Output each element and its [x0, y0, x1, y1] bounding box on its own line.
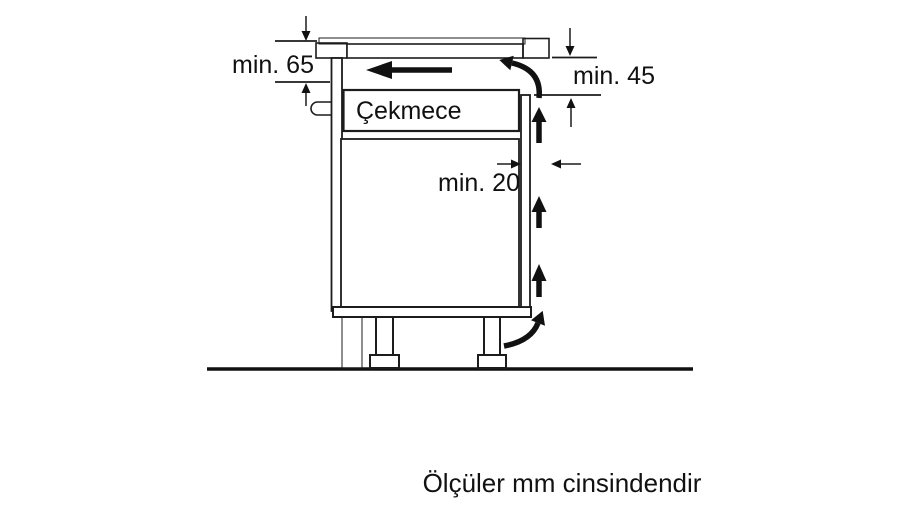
- airflow-up-arrow-2-icon: [532, 196, 547, 212]
- hob-glass-top: [319, 38, 525, 44]
- wall-section: [549, 17, 563, 368]
- cabinet-back-panel: [521, 95, 530, 307]
- min20-label: min. 20: [438, 169, 520, 197]
- airflow-up-arrow-3-icon: [532, 264, 547, 281]
- min65-arrow-down-icon: [302, 31, 311, 41]
- worktop-left-section: [316, 43, 347, 58]
- min45-arrow-down-icon: [566, 46, 575, 56]
- cabinet-leg-front: [370, 317, 399, 368]
- min45-arrow-up-icon: [567, 98, 576, 108]
- min45-label: min. 45: [573, 62, 655, 90]
- installation-diagram: min. 65 Çekme: [0, 0, 900, 506]
- leg-shaft: [376, 317, 393, 356]
- cabinet-bottom-panel: [333, 307, 531, 317]
- appliance-installation-diagram-page: min. 65 Çekme: [0, 0, 900, 506]
- leg-shaft: [484, 317, 500, 356]
- drawer-label: Çekmece: [356, 97, 462, 125]
- worktop-right-section: [523, 39, 549, 59]
- min65-arrow-up-icon: [302, 83, 311, 93]
- dimension-min65: min. 65: [232, 16, 330, 106]
- cabinet-plinth: [342, 313, 362, 368]
- units-caption: Ölçüler mm cinsindendir: [423, 468, 702, 498]
- min65-label: min. 65: [232, 51, 314, 79]
- cabinet-leg-rear: [478, 317, 506, 368]
- hob-cutout-cavity: [347, 44, 523, 58]
- cabinet-interior: [341, 139, 519, 307]
- airflow-curve-bottom-shaft: [504, 323, 538, 346]
- airflow-curve-top-shaft: [512, 63, 539, 98]
- leg-foot: [370, 355, 399, 368]
- airflow-left-arrow-icon: [366, 61, 392, 79]
- dimension-min45: min. 45: [534, 28, 655, 127]
- min20-arrow-left-icon: [551, 160, 561, 169]
- leg-foot: [478, 355, 506, 368]
- airflow-up-arrow-1-icon: [532, 107, 547, 122]
